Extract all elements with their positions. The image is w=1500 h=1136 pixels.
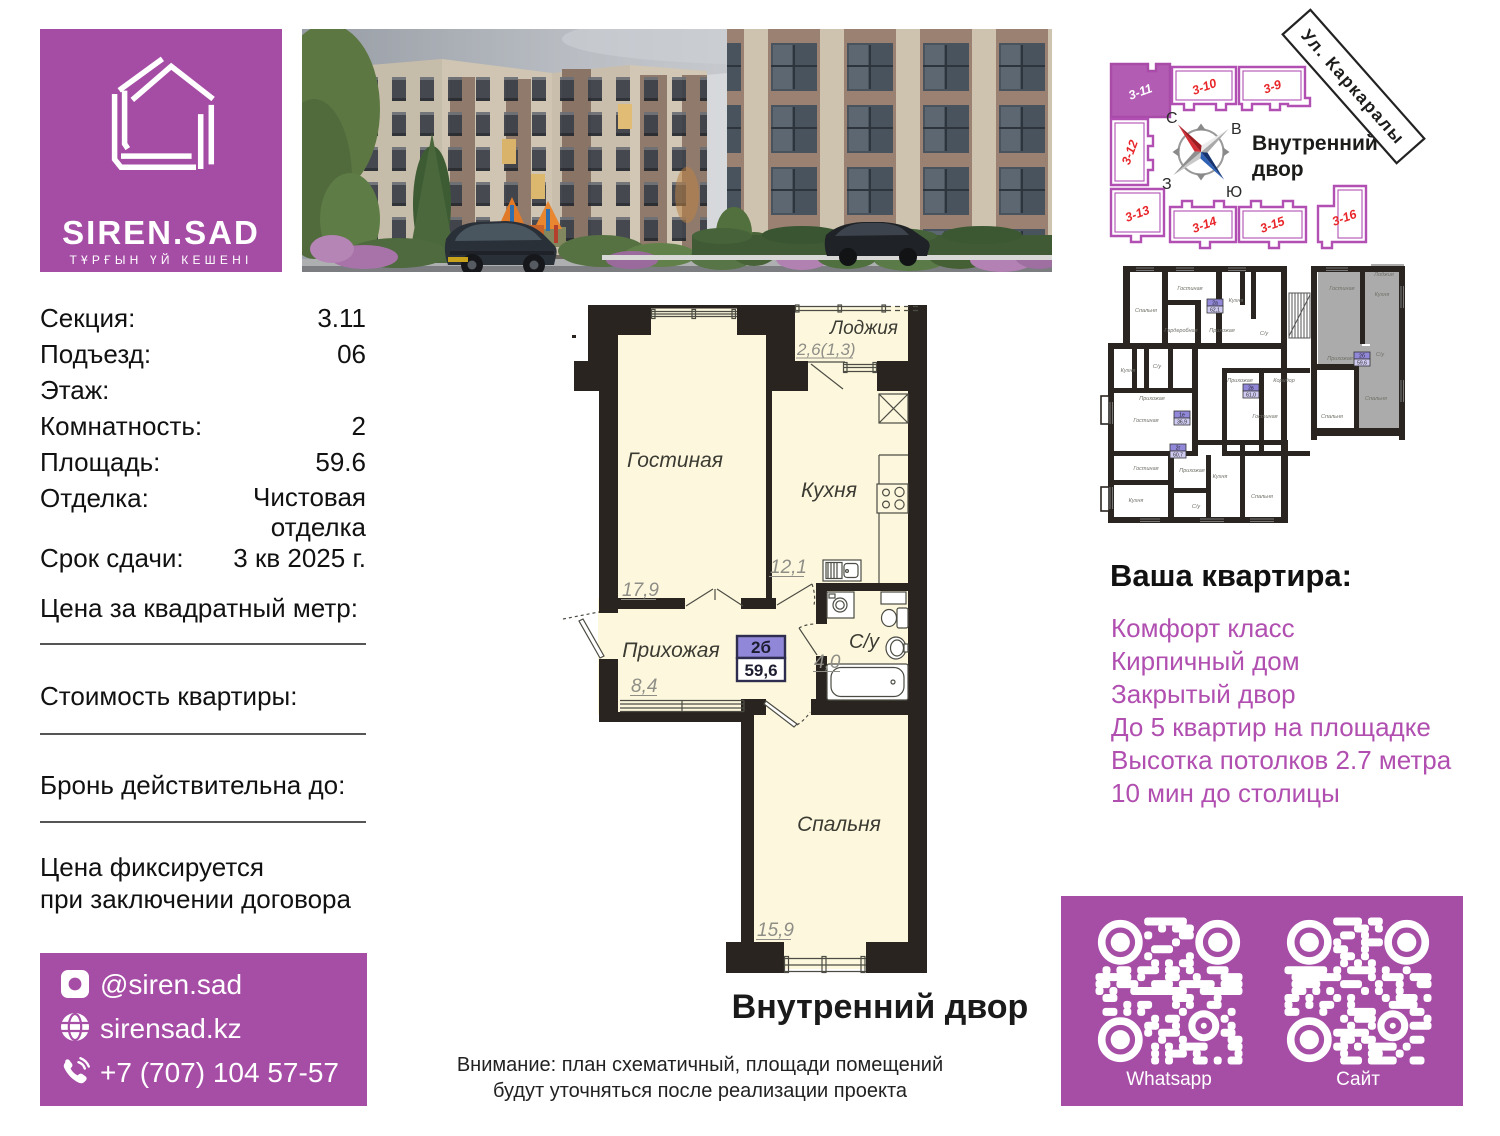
- svg-text:17,9: 17,9: [622, 580, 659, 601]
- svg-text:Кухня: Кухня: [801, 479, 857, 502]
- svg-text:Гостиная: Гостиная: [1329, 286, 1354, 292]
- svg-text:Прихожая: Прихожая: [1139, 396, 1165, 402]
- svg-text:4,0: 4,0: [814, 652, 841, 673]
- svg-text:Гостиная: Гостиная: [1133, 466, 1158, 472]
- svg-text:Спальня: Спальня: [797, 813, 881, 836]
- svg-text:61,0: 61,0: [1246, 393, 1256, 399]
- svg-text:2,6(1,3): 2,6(1,3): [796, 340, 856, 359]
- svg-text:Внутренний: Внутренний: [1252, 132, 1378, 155]
- svg-text:8,4: 8,4: [631, 676, 657, 697]
- svg-text:Прихожая: Прихожая: [1209, 328, 1235, 334]
- svg-text:60,7: 60,7: [1173, 453, 1183, 459]
- svg-text:Сайт: Сайт: [1336, 1069, 1380, 1090]
- svg-text:Кухня: Кухня: [1121, 368, 1136, 374]
- svg-text:С/у: С/у: [1260, 331, 1270, 337]
- svg-text:Кухня: Кухня: [1129, 498, 1144, 504]
- svg-text:С/у: С/у: [1192, 504, 1202, 510]
- svg-text:Кухня: Кухня: [1213, 474, 1228, 480]
- svg-text:Прихожая: Прихожая: [1179, 468, 1205, 474]
- svg-text:36,9: 36,9: [1177, 420, 1187, 426]
- svg-text:15,9: 15,9: [757, 920, 794, 941]
- svg-text:Спальня: Спальня: [1251, 494, 1273, 500]
- svg-text:Спальня: Спальня: [1321, 414, 1343, 420]
- svg-text:1е: 1е: [1179, 413, 1185, 419]
- svg-text:двор: двор: [1252, 158, 1304, 181]
- svg-text:2г: 2г: [1176, 446, 1181, 452]
- svg-text:59,6: 59,6: [744, 661, 777, 680]
- svg-text:Гостиная: Гостиная: [1177, 286, 1202, 292]
- svg-text:12,1: 12,1: [770, 557, 807, 578]
- svg-text:Ю: Ю: [1226, 184, 1242, 201]
- svg-text:Кухня: Кухня: [1375, 292, 1390, 298]
- svg-text:Коридор: Коридор: [1273, 378, 1295, 384]
- svg-text:2б: 2б: [1359, 354, 1365, 360]
- svg-text:62,1: 62,1: [1210, 308, 1220, 314]
- svg-text:С/у: С/у: [1153, 364, 1163, 370]
- svg-text:Прихожая: Прихожая: [1327, 356, 1353, 362]
- svg-text:Лоджия: Лоджия: [828, 318, 898, 339]
- svg-text:2в: 2в: [1248, 386, 1254, 392]
- svg-text:59,6: 59,6: [1357, 361, 1367, 367]
- svg-text:З: З: [1162, 176, 1172, 193]
- svg-text:Ул. Каркаралы: Ул. Каркаралы: [1297, 25, 1409, 148]
- svg-text:Прихожая: Прихожая: [622, 639, 719, 662]
- svg-text:2б: 2б: [751, 638, 771, 657]
- svg-text:В: В: [1231, 121, 1242, 138]
- svg-text:Кухня: Кухня: [1229, 298, 1244, 304]
- svg-text:С/у: С/у: [849, 631, 880, 653]
- svg-text:Гостиная: Гостиная: [1252, 414, 1277, 420]
- svg-text:Whatsapp: Whatsapp: [1126, 1069, 1212, 1090]
- svg-text:2а: 2а: [1212, 301, 1218, 307]
- svg-text:С: С: [1166, 110, 1178, 127]
- svg-text:Гостиная: Гостиная: [1133, 418, 1158, 424]
- svg-text:Гардеробная: Гардеробная: [1164, 328, 1197, 334]
- svg-text:С/у: С/у: [1376, 352, 1386, 358]
- svg-text:Лоджия: Лоджия: [1373, 272, 1394, 278]
- svg-text:Гостиная: Гостиная: [627, 449, 723, 472]
- svg-text:Прихожая: Прихожая: [1227, 378, 1253, 384]
- svg-text:Спальня: Спальня: [1365, 396, 1387, 402]
- svg-text:Спальня: Спальня: [1135, 308, 1157, 314]
